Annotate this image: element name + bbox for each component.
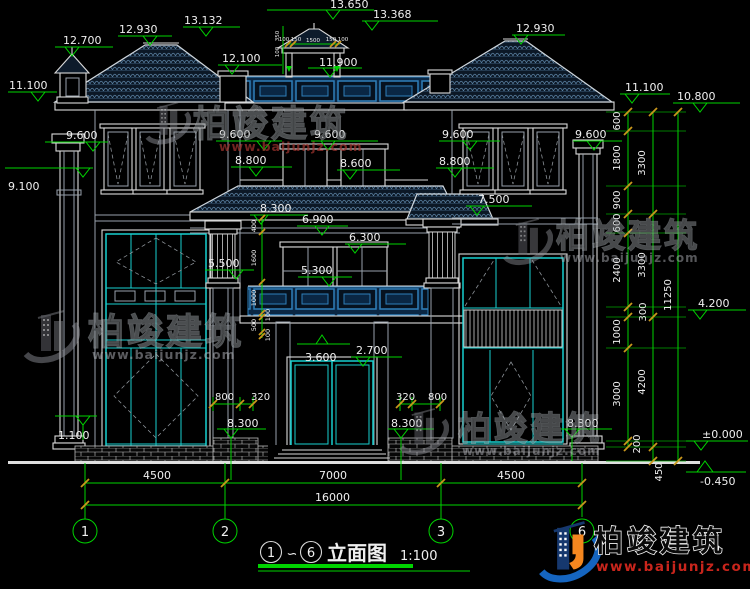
title-bubble-to: 6 [307, 546, 315, 561]
chain-11250: 11250 [663, 279, 674, 311]
brand-name: 柏竣建筑 [594, 524, 726, 558]
chain-900: 900 [612, 190, 623, 209]
elev-8300-a: 8.300 [227, 417, 259, 430]
watermark-url: www.baijunjz.com [462, 444, 601, 458]
cdim-1500: 1500 [306, 38, 320, 44]
chain-1800: 1800 [612, 145, 623, 170]
dim-320-right: 320 [396, 392, 415, 403]
chain-3000: 3000 [612, 381, 623, 406]
watermark-url: www.baijunjz.com [92, 347, 236, 362]
sdim-400: 400 [250, 220, 258, 232]
brand-logo-icon [505, 219, 550, 263]
title-bubble-from: 1 [267, 546, 275, 561]
bottom-dims: 4500 7000 4500 16000 1 2 3 6 [73, 463, 594, 543]
chimney-right [428, 70, 452, 93]
entrance-door [276, 322, 388, 449]
chain-1000: 1000 [612, 319, 623, 344]
elev-3600: 3.600 [305, 351, 337, 364]
sdim-1600: 1600 [250, 250, 258, 267]
elev-8800-right: 8.800 [439, 155, 471, 168]
right-column [423, 219, 461, 438]
elev-12930-left: 12.930 [119, 23, 158, 36]
elev-5300: 5.300 [301, 264, 333, 277]
elev-11100-left: 11.100 [9, 79, 48, 92]
elev-9600-5: 9.600 [575, 128, 607, 141]
bay-7000: 7000 [319, 469, 347, 482]
elev-13132: 13.132 [184, 14, 223, 27]
watermark-right: 柏竣建筑 www.baijunjz.com [505, 216, 700, 265]
cad-elevation-drawing: 12.700 12.930 13.132 13.650 13.368 12.93… [0, 0, 750, 589]
cdim-100v: 100 [275, 46, 281, 57]
cdim-100b: 100 [338, 37, 349, 43]
elev-13368: 13.368 [373, 8, 412, 21]
bay-4500-left: 4500 [143, 469, 171, 482]
chimney-left [218, 71, 248, 102]
drawing-scale: 1:100 [400, 549, 437, 564]
brand-footer-logo: 柏竣建筑 www.baijunjz.com [542, 522, 750, 579]
watermark-url: www.baijunjz.com [219, 139, 363, 154]
title-block: 1 ∽ 6 立面图 1:100 [258, 541, 470, 571]
sdim-1000: 1000 [250, 290, 258, 307]
elev-12100: 12.100 [222, 52, 261, 65]
brand-logo-icon [26, 311, 77, 360]
cdim-350: 350 [275, 30, 281, 41]
bay-4500-right: 4500 [497, 469, 525, 482]
cdim-150a: 150 [291, 37, 302, 43]
elev-2700: 2.700 [356, 344, 388, 357]
sdim-100b: 100 [264, 329, 272, 341]
elev-8300-awning: 8.300 [260, 202, 292, 215]
chain-600a: 600 [612, 111, 623, 130]
right-dim-chains: 600 1800 900 600 2400 300 1000 3000 200 … [606, 108, 686, 482]
chain-3300a: 3300 [637, 150, 648, 175]
elev-8600: 8.600 [340, 157, 372, 170]
elev-zero: ±0.000 [702, 428, 743, 441]
elev-6900: 6.900 [302, 213, 334, 226]
elev-13650: 13.650 [330, 0, 369, 11]
dim-800-right: 800 [428, 392, 447, 403]
elev-6300: 6.300 [349, 231, 381, 244]
left-upper-windows [100, 124, 205, 194]
grid-2-label: 2 [221, 525, 229, 540]
ground-line [8, 461, 700, 464]
elev-12930-right: 12.930 [516, 22, 555, 35]
dim-320-left: 320 [251, 392, 270, 403]
elev-1100: 1.100 [58, 429, 90, 442]
sdim-500: 500 [250, 319, 258, 331]
drawing-canvas: 12.700 12.930 13.132 13.650 13.368 12.93… [0, 0, 750, 589]
watermark-url: www.baijunjz.com [560, 251, 699, 265]
drawing-title: 立面图 [327, 541, 387, 565]
watermark-brand: 柏竣建筑 [458, 409, 602, 448]
elev-9600-4: 9.600 [442, 128, 474, 141]
grid-3-label: 3 [437, 525, 445, 540]
elev-8800-left: 8.800 [235, 154, 267, 167]
elev-11900: 11.900 [319, 56, 358, 69]
cdim-150b: 150 [326, 37, 337, 43]
elev-11100-right: 11.100 [625, 81, 664, 94]
elev-5500: 5.500 [208, 257, 240, 270]
chain-200: 200 [632, 434, 643, 453]
chain-4200: 4200 [637, 369, 648, 394]
left-pilaster [52, 134, 85, 449]
chain-450: 450 [654, 462, 665, 481]
watermark-left: 柏竣建筑 www.baijunjz.com [26, 311, 244, 362]
title-wave: ∽ [287, 547, 298, 562]
brand-url: www.baijunjz.com [596, 559, 750, 575]
elev-7500: 7.500 [478, 193, 510, 206]
grid-1-label: 1 [81, 525, 89, 540]
dim-800-left: 800 [215, 392, 234, 403]
sdim-100a: 100 [264, 309, 272, 321]
right-pilaster [570, 140, 604, 449]
right-upper-windows [459, 124, 567, 194]
bay-total-16000: 16000 [315, 491, 350, 504]
elev-minus450: -0.450 [700, 475, 735, 488]
elev-4200: 4.200 [698, 297, 730, 310]
elev-10800: 10.800 [677, 90, 716, 103]
chain-300: 300 [638, 302, 649, 321]
balcony-railing [248, 287, 428, 316]
title-underline-thick [258, 564, 413, 568]
elev-9100: 9.100 [8, 180, 40, 193]
watermark-brand: 柏竣建筑 [556, 216, 700, 255]
elev-12700: 12.700 [63, 34, 102, 47]
elev-9600-1: 9.600 [66, 129, 98, 142]
